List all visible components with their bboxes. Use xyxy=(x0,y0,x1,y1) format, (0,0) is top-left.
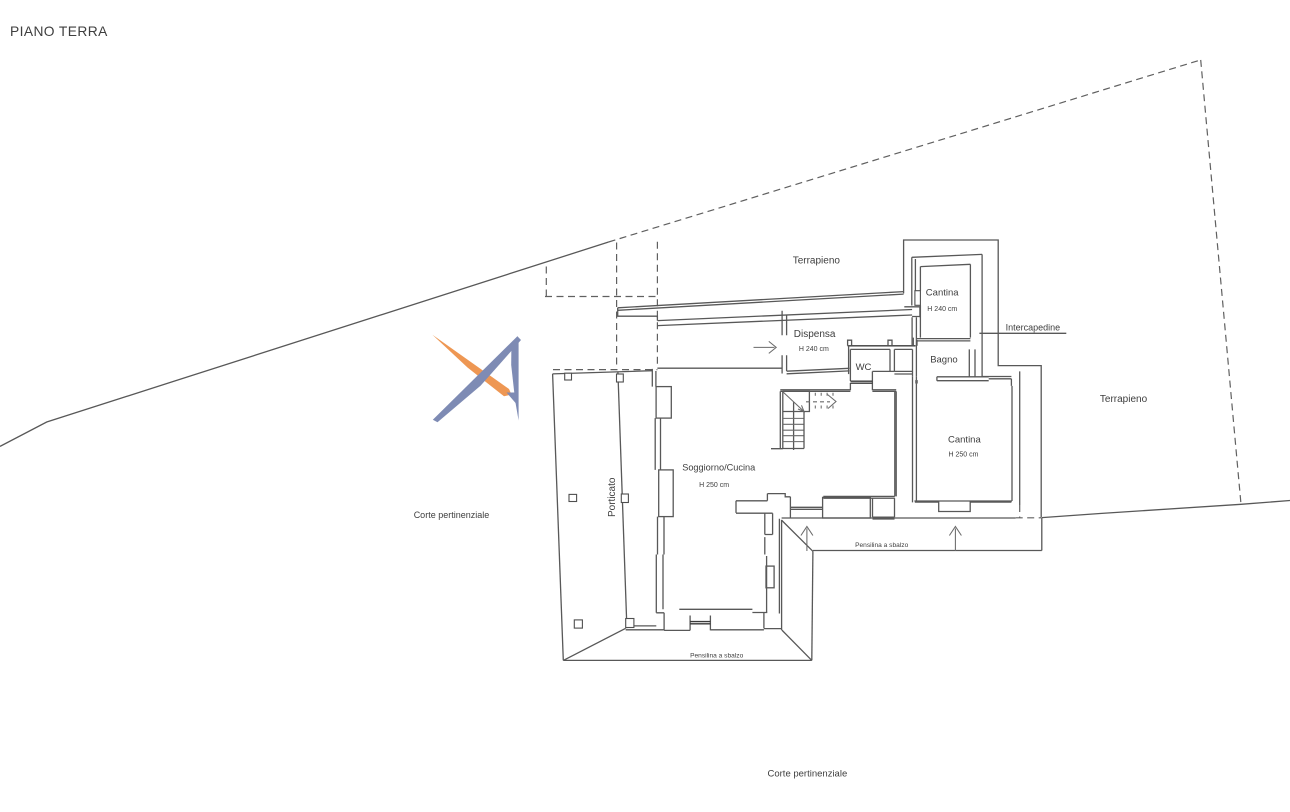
svg-text:H 250 cm: H 250 cm xyxy=(699,482,729,489)
svg-text:Terrapieno: Terrapieno xyxy=(1100,394,1148,405)
svg-text:Intercapedine: Intercapedine xyxy=(1006,323,1061,333)
svg-text:Pensilina a sbalzo: Pensilina a sbalzo xyxy=(690,652,743,659)
svg-text:Corte pertinenziale: Corte pertinenziale xyxy=(414,510,490,520)
svg-text:Dispensa: Dispensa xyxy=(794,329,836,340)
svg-text:Cantina: Cantina xyxy=(948,434,981,445)
svg-text:Terrapieno: Terrapieno xyxy=(793,256,841,267)
svg-text:Corte pertinenziale: Corte pertinenziale xyxy=(768,769,848,780)
svg-text:Bagno: Bagno xyxy=(930,355,957,366)
svg-text:PIANO TERRA: PIANO TERRA xyxy=(10,24,108,39)
svg-text:Pensilina a sbalzo: Pensilina a sbalzo xyxy=(855,542,908,549)
svg-text:H 250 cm: H 250 cm xyxy=(949,451,979,458)
svg-text:Soggiorno/Cucina: Soggiorno/Cucina xyxy=(682,463,756,473)
svg-text:H 240 cm: H 240 cm xyxy=(799,346,829,353)
svg-text:H 240 cm: H 240 cm xyxy=(927,306,957,313)
svg-text:Cantina: Cantina xyxy=(926,288,959,299)
svg-text:Porticato: Porticato xyxy=(607,477,618,517)
svg-text:WC: WC xyxy=(856,362,872,373)
